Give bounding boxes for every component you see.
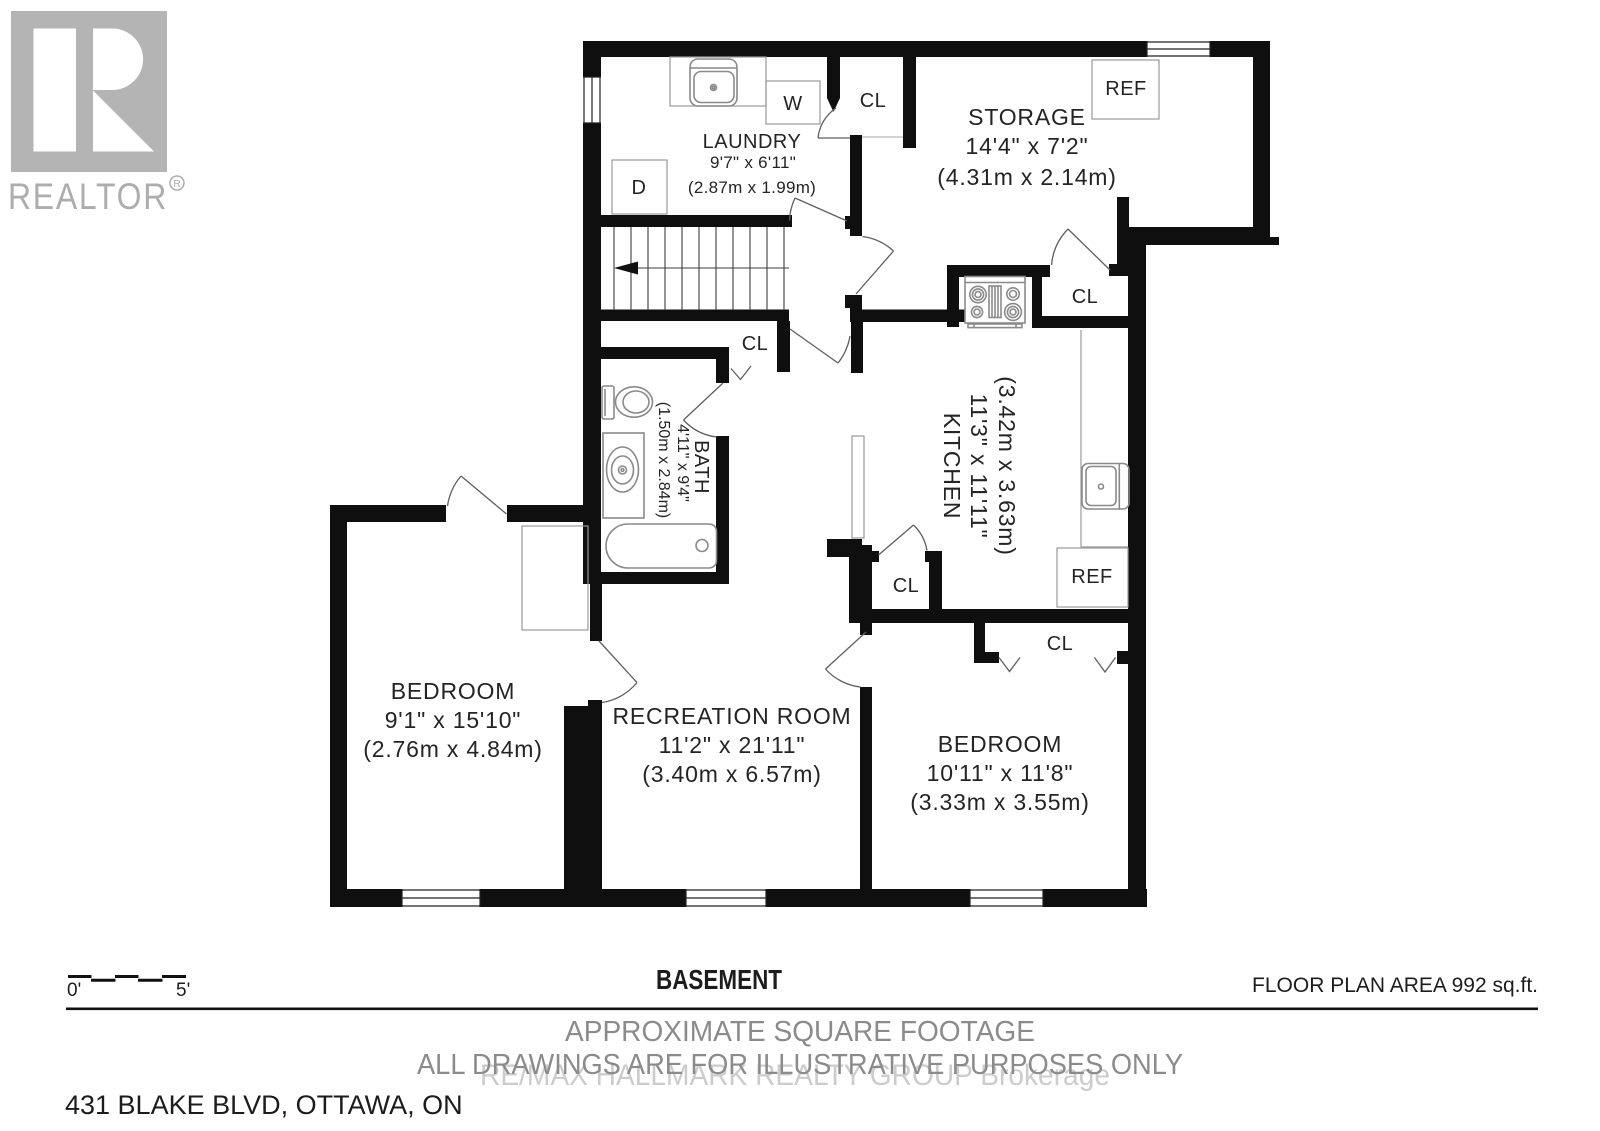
svg-text:W: W	[783, 93, 802, 115]
svg-text:431 BLAKE BLVD, OTTAWA, ON: 431 BLAKE BLVD, OTTAWA, ON	[65, 1090, 463, 1120]
svg-text:11'2" x 21'11": 11'2" x 21'11"	[659, 732, 806, 758]
svg-text:BASEMENT: BASEMENT	[656, 964, 782, 995]
svg-text:STORAGE: STORAGE	[968, 104, 1086, 130]
svg-text:14'4" x 7'2": 14'4" x 7'2"	[966, 133, 1089, 159]
svg-text:(4.31m x 2.14m): (4.31m x 2.14m)	[937, 164, 1116, 190]
svg-text:FLOOR PLAN AREA 992 sq.ft.: FLOOR PLAN AREA 992 sq.ft.	[1252, 974, 1538, 997]
svg-text:9'1" x 15'10": 9'1" x 15'10"	[385, 707, 522, 733]
svg-text:(1.50m x 2.84m): (1.50m x 2.84m)	[655, 402, 672, 518]
svg-text:ALL DRAWINGS ARE FOR ILLUSTRAT: ALL DRAWINGS ARE FOR ILLUSTRATIVE PURPOS…	[417, 1049, 1183, 1081]
svg-text:REALTOR: REALTOR	[8, 176, 168, 217]
svg-text:10'11" x 11'8": 10'11" x 11'8"	[927, 760, 1074, 786]
svg-text:CL: CL	[1072, 286, 1099, 308]
svg-text:BEDROOM: BEDROOM	[938, 731, 1062, 757]
svg-text:CL: CL	[742, 333, 769, 355]
svg-text:APPROXIMATE SQUARE FOOTAGE: APPROXIMATE SQUARE FOOTAGE	[565, 1016, 1035, 1048]
svg-text:(2.87m x 1.99m): (2.87m x 1.99m)	[688, 178, 816, 197]
svg-text:4'11" x 9'4": 4'11" x 9'4"	[674, 424, 691, 502]
svg-text:D: D	[632, 177, 647, 199]
svg-text:(2.76m x 4.84m): (2.76m x 4.84m)	[363, 736, 542, 762]
svg-text:(3.33m x 3.55m): (3.33m x 3.55m)	[910, 789, 1089, 815]
svg-text:CL: CL	[1047, 633, 1074, 655]
svg-text:CL: CL	[860, 90, 887, 112]
svg-text:R: R	[173, 179, 180, 190]
svg-text:11'3" x 11'11": 11'3" x 11'11"	[966, 393, 992, 538]
svg-text:RECREATION ROOM: RECREATION ROOM	[612, 703, 851, 729]
svg-text:(3.40m x 6.57m): (3.40m x 6.57m)	[642, 761, 821, 787]
svg-text:0': 0'	[67, 980, 81, 1001]
svg-text:LAUNDRY: LAUNDRY	[703, 131, 802, 153]
svg-text:9'7" x 6'11": 9'7" x 6'11"	[710, 153, 796, 172]
svg-text:BATH: BATH	[690, 440, 712, 494]
svg-text:(3.42m x 3.63m): (3.42m x 3.63m)	[994, 376, 1020, 555]
svg-text:CL: CL	[893, 575, 920, 597]
svg-text:REF: REF	[1071, 566, 1113, 588]
svg-text:BEDROOM: BEDROOM	[391, 678, 515, 704]
svg-text:REF: REF	[1105, 78, 1147, 100]
svg-text:KITCHEN: KITCHEN	[939, 413, 965, 520]
svg-text:5': 5'	[176, 980, 190, 1001]
